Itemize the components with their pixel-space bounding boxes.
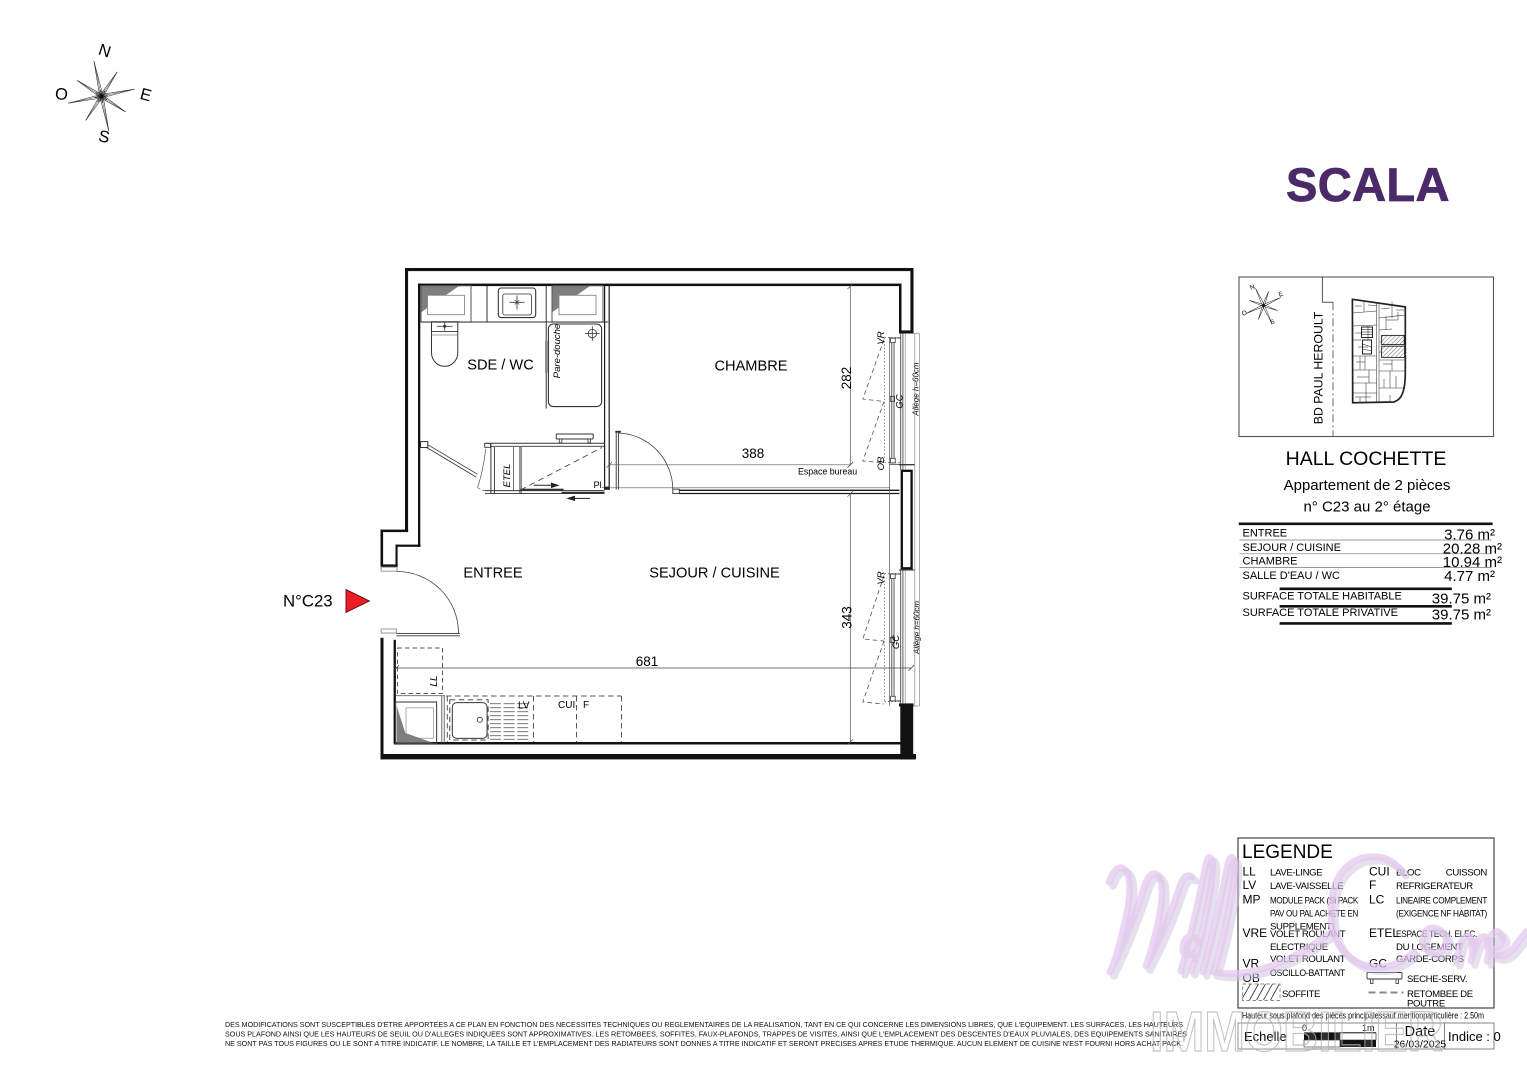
svg-text:MODULE PACK (SI PACK: MODULE PACK (SI PACK xyxy=(1270,895,1359,906)
svg-text:39.75 m²: 39.75 m² xyxy=(1432,591,1491,608)
svg-text:39.75 m²: 39.75 m² xyxy=(1432,607,1491,624)
svg-text:IMMOBILIER: IMMOBILIER xyxy=(1150,1000,1443,1064)
svg-text:MP: MP xyxy=(1243,892,1261,906)
svg-text:Espace bureau: Espace bureau xyxy=(798,467,857,477)
svg-text:681: 681 xyxy=(636,654,659,669)
svg-text:SOFFITE: SOFFITE xyxy=(1282,989,1320,1000)
svg-text:SEJOUR / CUISINE: SEJOUR / CUISINE xyxy=(649,565,780,581)
svg-text:S: S xyxy=(97,127,112,147)
svg-text:SDE / WC: SDE / WC xyxy=(467,358,533,374)
svg-text:LL: LL xyxy=(1243,865,1257,879)
svg-text:SECHE-SERV.: SECHE-SERV. xyxy=(1407,974,1467,985)
svg-text:388: 388 xyxy=(742,446,765,461)
svg-text:GC: GC xyxy=(895,394,906,408)
svg-text:HALL COCHETTE: HALL COCHETTE xyxy=(1286,448,1447,470)
svg-text:CUI: CUI xyxy=(1369,865,1390,879)
svg-text:Indice : 0: Indice : 0 xyxy=(1448,1029,1501,1044)
svg-text:4.77 m²: 4.77 m² xyxy=(1444,568,1495,585)
svg-text:SURFACE TOTALE HABITABLE: SURFACE TOTALE HABITABLE xyxy=(1243,591,1402,603)
svg-text:ENTREE: ENTREE xyxy=(1243,527,1288,539)
svg-text:Allège h=60cm: Allège h=60cm xyxy=(913,601,922,655)
svg-text:OB: OB xyxy=(876,456,887,470)
svg-text:SURFACE TOTALE PRIVATIVE: SURFACE TOTALE PRIVATIVE xyxy=(1243,607,1398,619)
svg-text:E: E xyxy=(1278,290,1285,298)
svg-text:ETEL: ETEL xyxy=(502,464,513,488)
svg-text:O: O xyxy=(54,85,69,104)
svg-text:LINEAIRE COMPLEMENT: LINEAIRE COMPLEMENT xyxy=(1396,895,1487,906)
svg-text:REFRIGERATEUR: REFRIGERATEUR xyxy=(1396,881,1473,892)
svg-text:LL: LL xyxy=(429,675,440,686)
svg-text:CUI: CUI xyxy=(558,700,575,711)
svg-text:SALLE D'EAU / WC: SALLE D'EAU / WC xyxy=(1243,570,1341,582)
svg-text:S: S xyxy=(1269,318,1276,326)
svg-text:ENTREE: ENTREE xyxy=(463,565,522,581)
svg-text:N: N xyxy=(96,41,113,62)
svg-text:282: 282 xyxy=(839,367,854,390)
svg-text:CUISSON: CUISSON xyxy=(1446,868,1488,879)
svg-text:Pare-douche: Pare-douche xyxy=(552,324,563,378)
svg-text:VRE: VRE xyxy=(1243,926,1268,940)
svg-text:PAV OU PAL ACHETE EN: PAV OU PAL ACHETE EN xyxy=(1270,909,1358,920)
svg-text:343: 343 xyxy=(840,606,855,629)
svg-text:F: F xyxy=(1369,878,1376,892)
svg-text:N°C23: N°C23 xyxy=(283,592,333,611)
svg-text:LV: LV xyxy=(1243,878,1257,892)
svg-text:CHAMBRE: CHAMBRE xyxy=(715,359,788,375)
svg-text:SEJOUR / CUISINE: SEJOUR / CUISINE xyxy=(1243,542,1341,554)
svg-text:GC: GC xyxy=(891,635,902,649)
svg-text:F: F xyxy=(583,700,589,711)
svg-text:LAVE-LINGE: LAVE-LINGE xyxy=(1270,868,1322,879)
svg-text:VR: VR xyxy=(876,571,887,584)
svg-text:N: N xyxy=(1249,283,1256,291)
svg-text:Pl.: Pl. xyxy=(594,480,605,490)
svg-text:LEGENDE: LEGENDE xyxy=(1242,842,1333,863)
svg-text:(EXIGENCE NF HABITAT): (EXIGENCE NF HABITAT) xyxy=(1396,909,1487,920)
svg-text:DES MODIFICATIONS SONT SUSCEPT: DES MODIFICATIONS SONT SUSCEPTIBLES D'ET… xyxy=(225,1020,1183,1029)
svg-text:n° C23 au 2° étage: n° C23 au 2° étage xyxy=(1303,499,1430,516)
svg-text:NE SONT PAS TOUS FIGURES OU LE: NE SONT PAS TOUS FIGURES OU LE SONT A TI… xyxy=(225,1039,1183,1048)
svg-text:SOUS PLAFOND AINSI QUE LES HAU: SOUS PLAFOND AINSI QUE LES HAUTEURS DE S… xyxy=(225,1030,1187,1039)
svg-text:BD PAUL HEROULT: BD PAUL HEROULT xyxy=(1312,311,1326,424)
svg-text:VR: VR xyxy=(876,331,887,344)
svg-text:CHAMBRE: CHAMBRE xyxy=(1243,556,1298,568)
svg-text:LV: LV xyxy=(518,701,530,712)
svg-text:SCALA: SCALA xyxy=(1286,158,1450,211)
svg-text:Appartement de 2 pièces: Appartement de 2 pièces xyxy=(1284,477,1451,494)
svg-text:E: E xyxy=(138,85,153,105)
svg-text:O: O xyxy=(1241,309,1248,317)
svg-text:ETEL: ETEL xyxy=(1369,926,1399,940)
svg-text:LC: LC xyxy=(1369,892,1385,906)
